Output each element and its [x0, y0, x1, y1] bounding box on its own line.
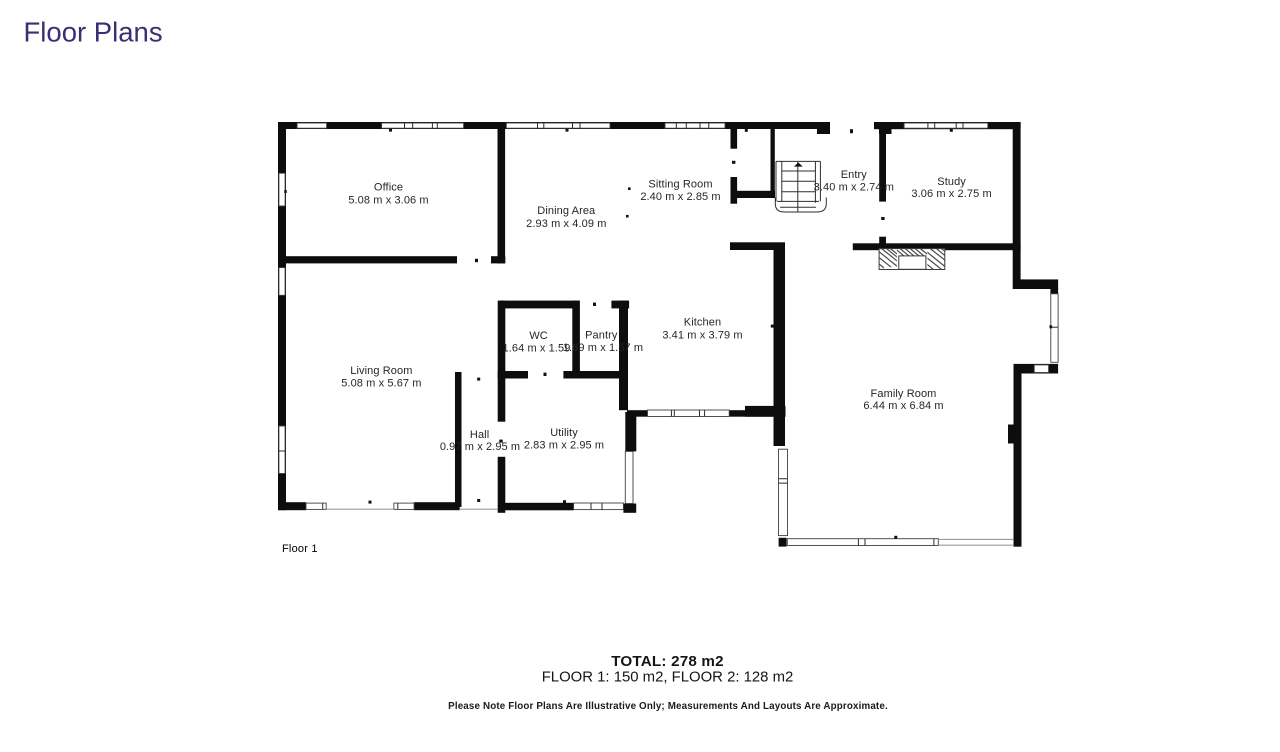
svg-text:Family Room: Family Room [871, 388, 937, 400]
svg-text:2.40 m x 2.85 m: 2.40 m x 2.85 m [640, 191, 720, 203]
svg-text:Study: Study [937, 176, 966, 188]
svg-text:TOTAL: 278 m2: TOTAL: 278 m2 [611, 653, 724, 670]
svg-text:FLOOR 1: 150 m2, FLOOR 2: 128: FLOOR 1: 150 m2, FLOOR 2: 128 m2 [542, 669, 794, 685]
svg-text:Entry: Entry [841, 169, 868, 181]
svg-text:0.97 m x 2.95 m: 0.97 m x 2.95 m [440, 441, 520, 453]
svg-text:Utility: Utility [550, 427, 578, 439]
svg-text:Hall: Hall [470, 429, 489, 441]
svg-text:3.40 m x 2.74 m: 3.40 m x 2.74 m [814, 182, 894, 194]
svg-text:Floor Plans: Floor Plans [24, 17, 163, 48]
svg-text:6.44 m x 6.84 m: 6.44 m x 6.84 m [863, 400, 943, 412]
svg-text:1.64 m x 1.59: 1.64 m x 1.59 [503, 343, 571, 355]
svg-text:Kitchen: Kitchen [684, 317, 721, 329]
svg-text:Office: Office [374, 182, 403, 194]
svg-text:2.83 m x 2.95 m: 2.83 m x 2.95 m [524, 440, 604, 452]
svg-text:Living Room: Living Room [350, 365, 412, 377]
svg-text:Please Note Floor Plans Are Il: Please Note Floor Plans Are Illustrative… [448, 701, 888, 712]
svg-text:5.08 m x 5.67 m: 5.08 m x 5.67 m [341, 378, 421, 390]
svg-text:Pantry: Pantry [585, 329, 618, 341]
svg-text:3.41 m x 3.79 m: 3.41 m x 3.79 m [662, 329, 742, 341]
svg-text:3.06 m x 2.75 m: 3.06 m x 2.75 m [911, 188, 991, 200]
svg-text:Dining Area: Dining Area [537, 205, 596, 217]
svg-text:Floor 1: Floor 1 [282, 543, 318, 555]
svg-text:1.69 m x 1.57 m: 1.69 m x 1.57 m [563, 342, 643, 354]
svg-text:2.93 m x 4.09 m: 2.93 m x 4.09 m [526, 218, 606, 230]
svg-text:5.08 m x 3.06 m: 5.08 m x 3.06 m [348, 194, 428, 206]
svg-text:WC: WC [529, 330, 548, 342]
svg-text:Sitting Room: Sitting Room [648, 179, 712, 191]
